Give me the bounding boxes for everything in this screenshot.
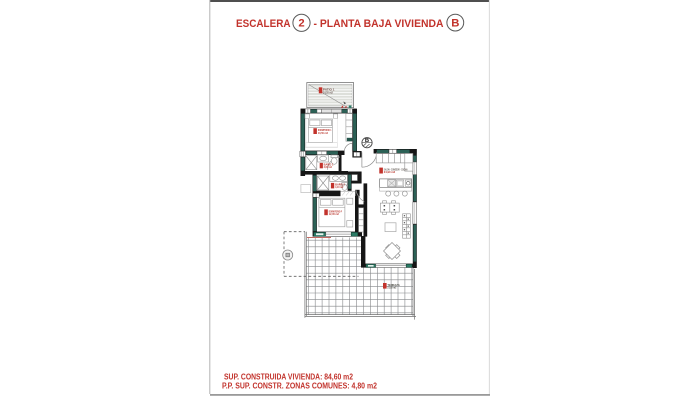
svg-text:14,55 m2: 14,55 m2: [323, 90, 333, 94]
svg-text:P.P. SUP. CONSTR. ZONAS COMUNE: P.P. SUP. CONSTR. ZONAS COMUNES: 4,80 m2: [222, 382, 378, 391]
svg-text:12,35 m2: 12,35 m2: [329, 212, 339, 216]
svg-text:B: B: [365, 138, 369, 144]
svg-text:21,65 m2: 21,65 m2: [387, 286, 396, 290]
svg-text:B: B: [451, 18, 459, 30]
svg-text:SUP. CONSTRUIDA VIVIENDA: 84: SUP. CONSTRUIDA VIVIENDA: 84,60 m2: [224, 373, 354, 382]
svg-text:10,50 m2: 10,50 m2: [318, 131, 328, 135]
svg-text:2: 2: [298, 18, 304, 30]
svg-text:ESCALERA: ESCALERA: [236, 18, 291, 30]
svg-text:- PLANTA BAJA VIVIENDA: - PLANTA BAJA VIVIENDA: [314, 18, 444, 30]
